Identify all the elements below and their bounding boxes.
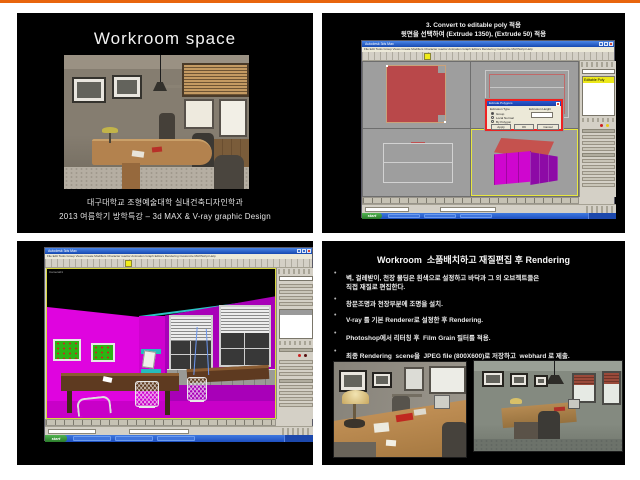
taskbar-item[interactable] bbox=[157, 436, 195, 441]
white-board bbox=[142, 350, 156, 369]
desk-leg bbox=[67, 391, 72, 413]
3dsmax-window: Autodesk 3ds Max File Edit Tools Group V… bbox=[44, 247, 313, 441]
panel-button-row[interactable] bbox=[279, 372, 313, 376]
panel-button-row[interactable] bbox=[582, 147, 615, 151]
window-blinds bbox=[574, 375, 594, 385]
picture-art bbox=[514, 377, 524, 383]
pendant-lamp bbox=[153, 82, 167, 91]
office-chair bbox=[214, 155, 244, 189]
render-image-room bbox=[473, 360, 623, 452]
box-side-face bbox=[530, 152, 558, 185]
table-lamp-base bbox=[344, 419, 365, 428]
red-book bbox=[152, 146, 162, 152]
bullet-text: 창문조명과 천장부분에 조명을 설치. bbox=[346, 298, 443, 308]
object-list-selected[interactable] bbox=[280, 310, 312, 315]
selected-edge bbox=[411, 142, 425, 143]
window-pane bbox=[429, 366, 466, 394]
rollout-header[interactable] bbox=[279, 348, 313, 352]
window-mullion bbox=[244, 333, 245, 365]
wall-picture bbox=[510, 373, 528, 387]
maximize-button[interactable] bbox=[302, 249, 306, 253]
window-unit bbox=[602, 371, 621, 405]
minimize-button[interactable] bbox=[599, 42, 603, 46]
window-mullion bbox=[190, 341, 191, 369]
window-pane bbox=[184, 99, 214, 129]
taskbar-item[interactable] bbox=[115, 436, 153, 441]
status-bar bbox=[362, 204, 616, 213]
window-blinds bbox=[604, 373, 619, 384]
toolbar[interactable] bbox=[362, 52, 614, 61]
lamp-cord bbox=[554, 361, 555, 376]
table-lamp-shade bbox=[510, 398, 522, 404]
desk-leg bbox=[165, 391, 170, 415]
bullet-text: 최종 Rendering scene을 JPEG file (800X600)로… bbox=[346, 350, 570, 360]
panel-button-row[interactable] bbox=[582, 177, 615, 181]
modifier-stack-list[interactable]: Editable Poly bbox=[582, 76, 615, 116]
cancel-button[interactable]: Cancel bbox=[537, 124, 559, 130]
modifier-dropdown[interactable] bbox=[582, 69, 615, 74]
status-field[interactable] bbox=[48, 429, 96, 434]
panel-button-row[interactable] bbox=[582, 141, 615, 145]
window-blinds bbox=[221, 307, 269, 333]
bullet-icon: • bbox=[334, 296, 336, 303]
panel-button-row[interactable] bbox=[279, 360, 313, 364]
coordinate-field[interactable] bbox=[440, 207, 496, 212]
workroom-photo bbox=[64, 55, 249, 189]
timeline-slider[interactable] bbox=[362, 197, 579, 204]
wireframe-line bbox=[384, 162, 452, 163]
color-dot-red bbox=[298, 354, 301, 357]
wall-picture bbox=[534, 375, 548, 387]
window-pane bbox=[219, 99, 247, 137]
system-tray[interactable] bbox=[588, 213, 616, 219]
viewport-area: Extrude Polygons Extrusion Type Group Lo… bbox=[362, 61, 579, 197]
vertex-dot bbox=[444, 121, 446, 123]
pendant-lamp bbox=[546, 375, 564, 384]
desk-lamp-stem bbox=[109, 133, 111, 143]
extrusion-type-label: Extrusion Type bbox=[490, 107, 510, 111]
extrusion-height-label: Extrusion Height bbox=[529, 107, 551, 111]
wall-picture bbox=[339, 370, 367, 392]
dialog-titlebar[interactable]: Extrude Polygons bbox=[487, 101, 561, 106]
color-dot-red bbox=[600, 124, 603, 127]
wall-picture bbox=[72, 77, 106, 103]
wireframe-chair bbox=[135, 381, 159, 407]
armchair-outline bbox=[76, 395, 112, 416]
modifier-dropdown[interactable] bbox=[279, 276, 313, 281]
wireframe-chair bbox=[187, 377, 207, 401]
command-panel-tabs[interactable] bbox=[278, 269, 313, 274]
chair-base bbox=[190, 401, 204, 402]
picture-art bbox=[117, 80, 137, 94]
maximize-button[interactable] bbox=[604, 42, 608, 46]
panel-button-row[interactable] bbox=[582, 135, 615, 139]
panel-button-row[interactable] bbox=[279, 385, 313, 389]
rollout-header[interactable] bbox=[279, 379, 313, 383]
coordinate-field[interactable] bbox=[129, 429, 189, 434]
panel-button-row[interactable] bbox=[582, 165, 615, 169]
picture-art bbox=[486, 375, 500, 383]
bullet-text: 직접 재질로 편집한다. bbox=[346, 281, 405, 291]
extrusion-height-spinner[interactable] bbox=[531, 112, 553, 118]
extrude-polygons-dialog[interactable]: Extrude Polygons Extrusion Type Group Lo… bbox=[485, 99, 563, 131]
picture-art bbox=[344, 375, 362, 387]
viewport-nav-buttons[interactable] bbox=[282, 428, 312, 435]
camera-viewport[interactable]: Camera01 bbox=[46, 268, 276, 419]
taskbar-item[interactable] bbox=[424, 214, 456, 218]
radio-group[interactable] bbox=[491, 112, 494, 115]
radio-local-normal[interactable] bbox=[491, 116, 494, 119]
slide-workroom-title: Workroom space 대구대학교 조형예술대학 실내건축디자인학과 20… bbox=[17, 13, 313, 233]
bullet-icon: • bbox=[334, 348, 336, 355]
viewport-left[interactable] bbox=[363, 129, 470, 196]
color-dot-dark bbox=[304, 354, 307, 357]
panel-button-row[interactable] bbox=[279, 302, 313, 306]
start-button[interactable]: start bbox=[45, 435, 67, 442]
command-panel[interactable] bbox=[276, 268, 313, 419]
green-picture-frame bbox=[91, 343, 115, 362]
color-dot-yellow bbox=[606, 124, 609, 127]
shape-notch bbox=[438, 66, 445, 73]
slide-room-model: Autodesk 3ds Max File Edit Tools Group V… bbox=[17, 241, 313, 465]
box-front-face bbox=[494, 151, 531, 185]
monitor bbox=[434, 395, 450, 409]
windows-taskbar[interactable]: start bbox=[45, 435, 313, 442]
picture-art bbox=[538, 379, 544, 383]
stack-toolbar[interactable] bbox=[279, 341, 313, 345]
panel-button-row[interactable] bbox=[279, 391, 313, 395]
3dsmax-window: Autodesk 3ds Max File Edit Tools Group V… bbox=[361, 40, 615, 218]
floor-shadow bbox=[334, 442, 376, 458]
object-list[interactable] bbox=[279, 309, 313, 339]
table-lamp-shade bbox=[342, 390, 369, 404]
monitor bbox=[568, 399, 580, 409]
panel-button-row[interactable] bbox=[279, 296, 313, 300]
active-tool-highlight bbox=[424, 53, 431, 60]
system-tray[interactable] bbox=[284, 435, 313, 442]
active-tool-highlight bbox=[125, 260, 132, 267]
vertex-dot bbox=[386, 65, 388, 67]
slide4-title: Workroom 소품배치하고 재질편집 후 Rendering bbox=[322, 253, 625, 266]
slide2-heading-line2: 윗면을 선택하여 (Extrude 1350), (Extrude 50) 적용 bbox=[322, 28, 625, 38]
rollout-header[interactable] bbox=[582, 153, 615, 157]
wall-picture bbox=[112, 75, 142, 99]
window-unit bbox=[219, 305, 271, 367]
timeline-slider[interactable] bbox=[45, 419, 276, 426]
wall-picture bbox=[372, 372, 392, 388]
office-chair bbox=[442, 422, 467, 458]
desk-side-panel bbox=[122, 163, 140, 189]
bullet-icon: • bbox=[334, 330, 336, 337]
viewport-perspective-active[interactable] bbox=[471, 129, 578, 196]
office-chair bbox=[159, 113, 175, 141]
bullet-icon: • bbox=[334, 270, 336, 277]
slide-editable-poly: 3. Convert to editable poly 적용 윗면을 선택하여 … bbox=[322, 13, 625, 233]
panel-button-row[interactable] bbox=[582, 183, 615, 187]
toolbar[interactable] bbox=[45, 259, 312, 268]
window-mullion bbox=[171, 354, 211, 355]
chair-base bbox=[139, 407, 155, 408]
bullet-text: Photoshop에서 리터칭 후 Film Grain 필터를 적용. bbox=[346, 332, 491, 342]
command-panel[interactable]: Editable Poly bbox=[579, 61, 616, 197]
slide-rendering-notes: Workroom 소품배치하고 재질편집 후 Rendering • 벽, 걸레… bbox=[322, 241, 625, 465]
window-title: Autodesk 3ds Max bbox=[365, 42, 394, 46]
dialog-close-icon[interactable] bbox=[556, 102, 560, 106]
window-pane bbox=[404, 367, 424, 391]
slide1-caption-line1: 대구대학교 조형예술대학 실내건축디자인학과 bbox=[17, 197, 313, 208]
floor bbox=[474, 439, 623, 452]
panel-button-row[interactable] bbox=[279, 290, 313, 294]
close-button[interactable] bbox=[609, 42, 613, 46]
command-panel-tabs[interactable] bbox=[581, 62, 615, 67]
taskbar-item[interactable] bbox=[460, 214, 492, 218]
viewport-nav-buttons[interactable] bbox=[586, 206, 614, 213]
papers bbox=[374, 422, 390, 433]
desk bbox=[61, 373, 179, 391]
apply-button[interactable]: Apply bbox=[491, 124, 511, 130]
bullet-text: V-ray 를 기본 Renderer로 설정한 후 Rendering. bbox=[346, 314, 483, 324]
viewport-label: Camera01 bbox=[49, 270, 63, 274]
status-field[interactable] bbox=[365, 207, 409, 212]
close-button[interactable] bbox=[307, 249, 311, 253]
panel-button-row[interactable] bbox=[279, 403, 313, 407]
taskbar-item[interactable] bbox=[73, 436, 111, 441]
lamp-cord bbox=[160, 55, 161, 83]
rollout-header[interactable] bbox=[582, 129, 615, 133]
stack-toolbar[interactable] bbox=[582, 118, 615, 122]
render-image-desk bbox=[333, 361, 467, 458]
picture-art bbox=[376, 376, 388, 384]
panel-button-row[interactable] bbox=[279, 397, 313, 401]
window-blinds bbox=[182, 63, 249, 97]
slide1-caption-line2: 2013 여름학기 방학특강 – 3d MAX & V-ray graphic … bbox=[17, 211, 313, 222]
green-picture-frame bbox=[53, 339, 81, 361]
wireframe-rect bbox=[383, 143, 453, 183]
panel-button-row[interactable] bbox=[582, 159, 615, 163]
wireframe-line bbox=[490, 87, 564, 88]
window-title: Autodesk 3ds Max bbox=[48, 249, 77, 253]
viewport-top[interactable] bbox=[363, 62, 470, 128]
minimize-button[interactable] bbox=[297, 249, 301, 253]
start-button[interactable]: start bbox=[362, 213, 382, 219]
panel-button-row[interactable] bbox=[279, 284, 313, 288]
panel-button-row[interactable] bbox=[279, 366, 313, 370]
window-mullion bbox=[221, 348, 269, 349]
page-top-rule bbox=[0, 0, 640, 3]
papers bbox=[386, 440, 396, 447]
windows-taskbar[interactable]: start bbox=[362, 213, 616, 219]
red-floorplan-shape bbox=[387, 66, 445, 122]
ok-button[interactable]: OK bbox=[514, 124, 534, 130]
panel-button-row[interactable] bbox=[582, 171, 615, 175]
picture-art bbox=[77, 82, 101, 98]
modifier-stack-selected[interactable]: Editable Poly bbox=[583, 77, 614, 83]
wall-picture bbox=[482, 371, 504, 387]
taskbar-item[interactable] bbox=[388, 214, 420, 218]
bullet-icon: • bbox=[334, 312, 336, 319]
status-bar bbox=[45, 426, 313, 435]
slide1-title: Workroom space bbox=[17, 29, 313, 49]
